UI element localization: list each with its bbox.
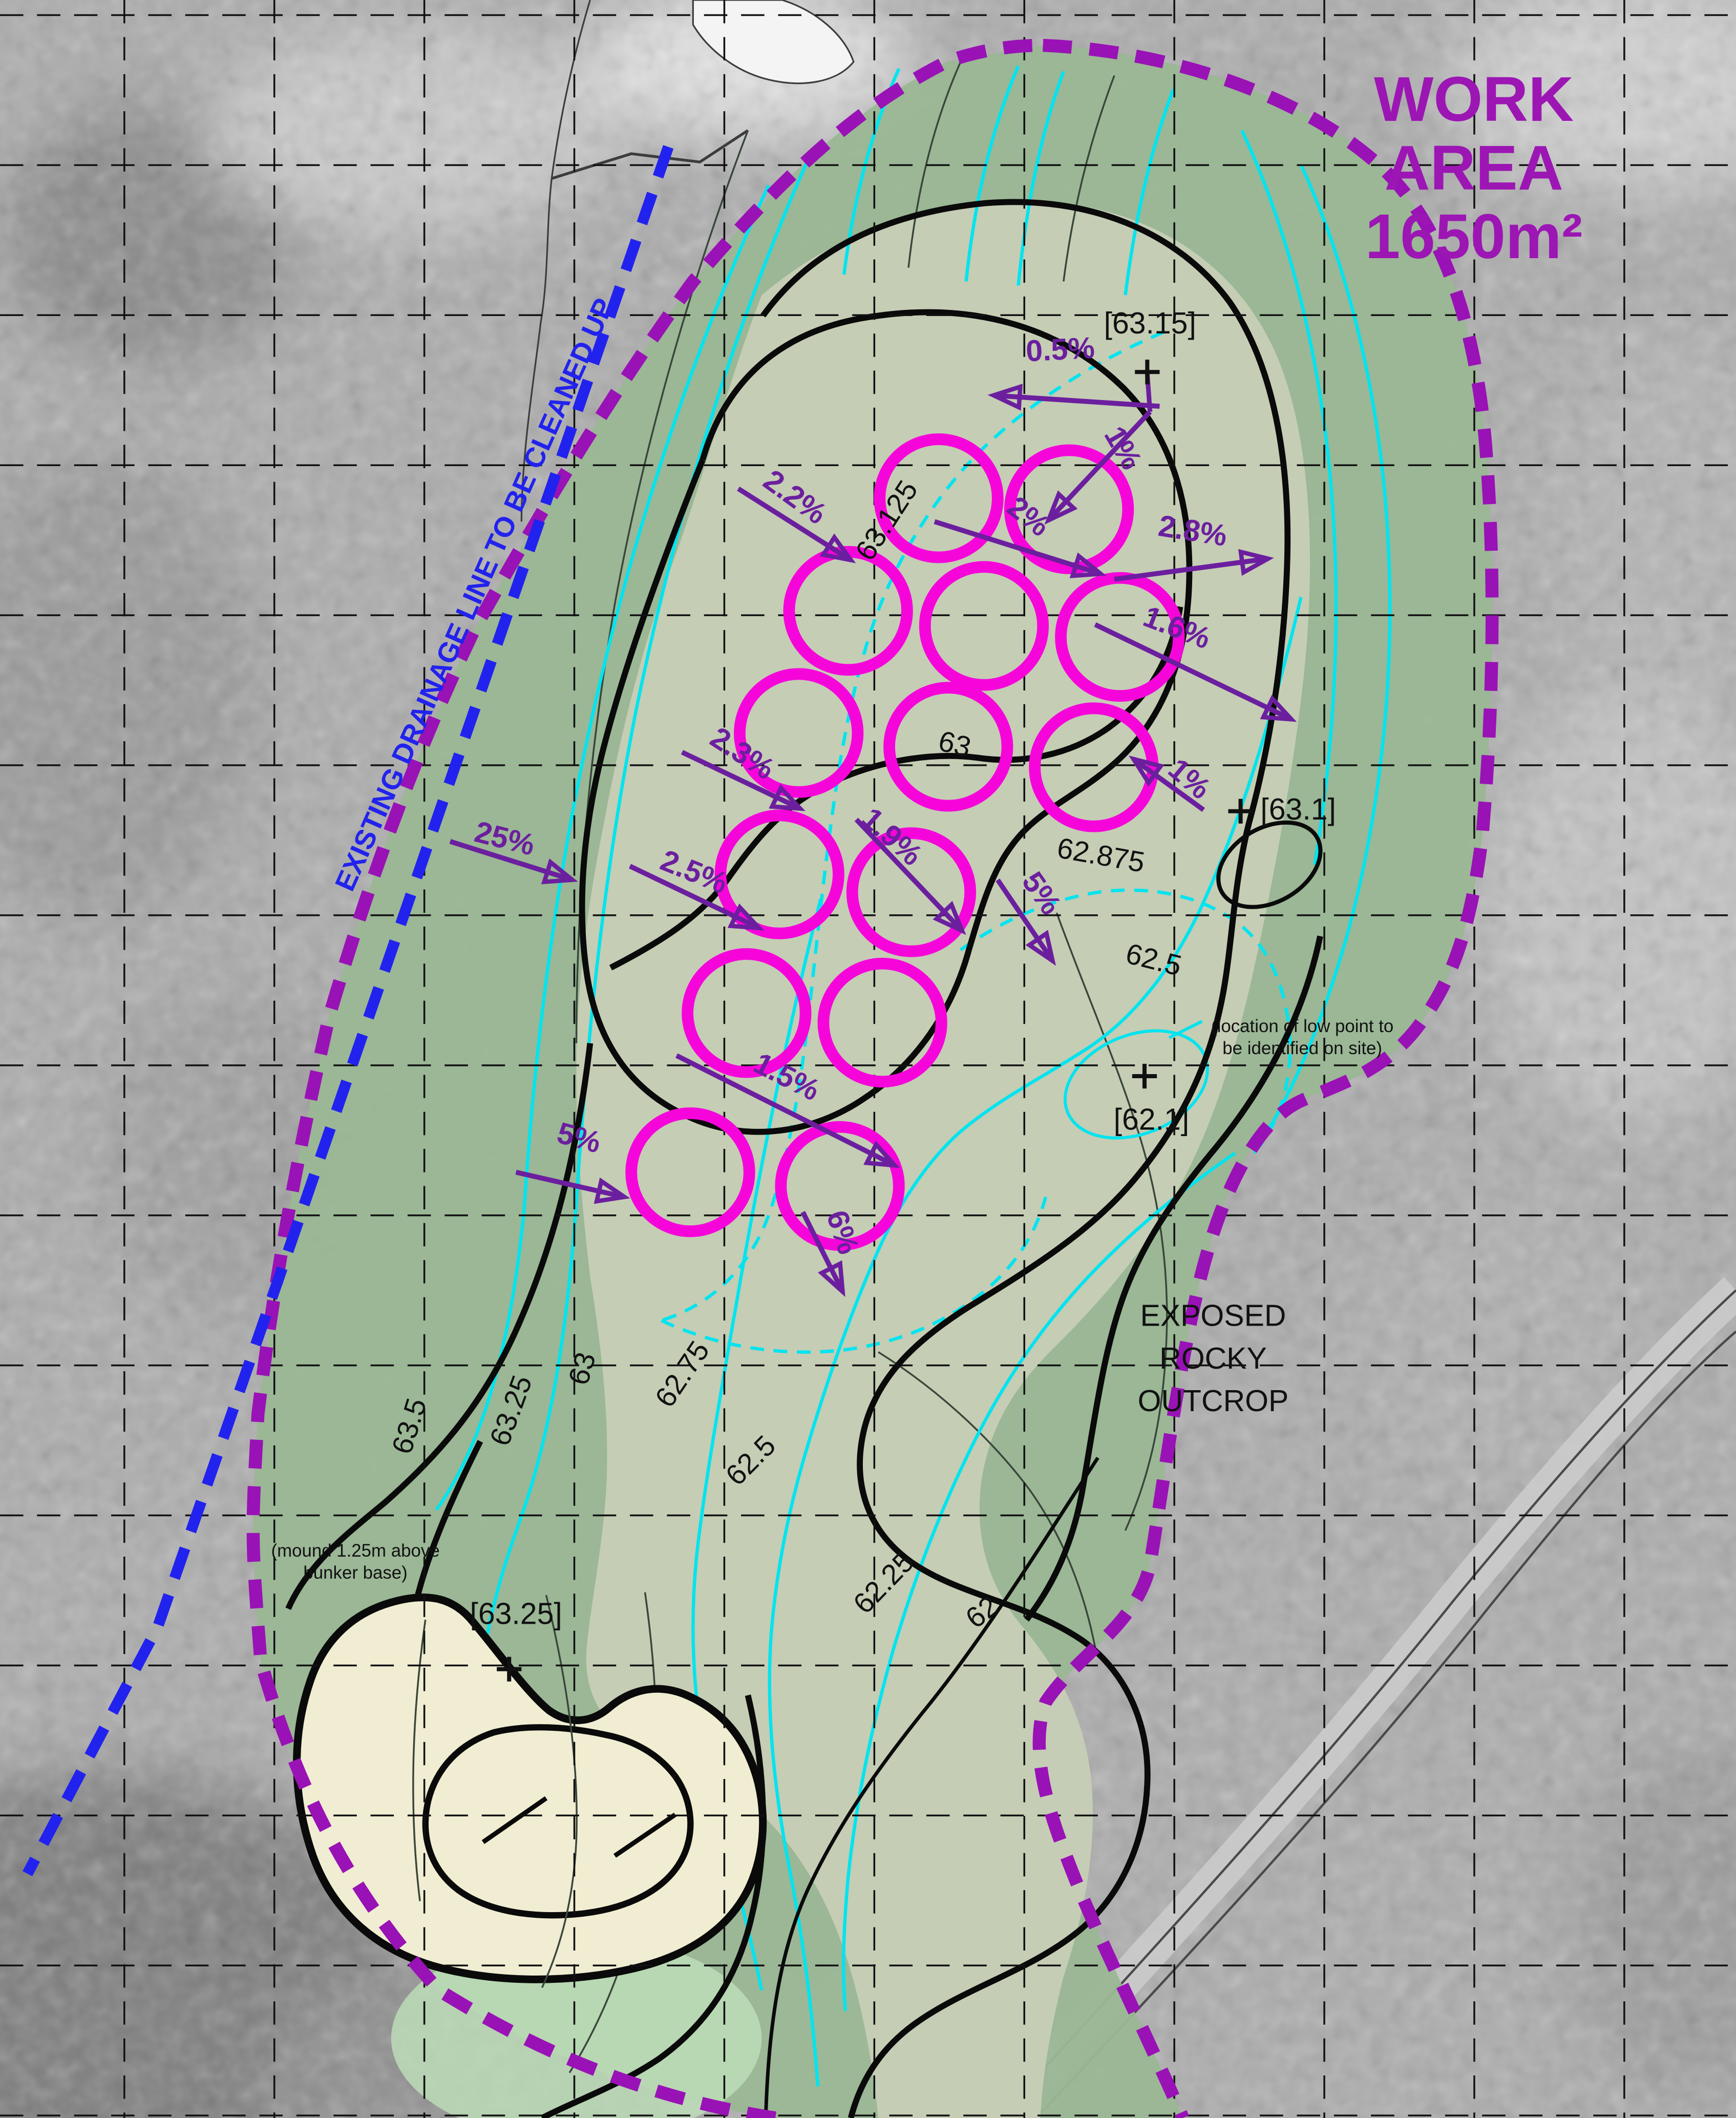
spot-elevation-label: [62.1] bbox=[1114, 1103, 1189, 1137]
slope-percentage-label: 0.5% bbox=[1025, 331, 1096, 368]
note-text-line: bunker base) bbox=[303, 1563, 407, 1583]
spot-elevation-label: [63.1] bbox=[1260, 793, 1336, 826]
note-text-line: (mound 1.25m above bbox=[271, 1541, 440, 1561]
note-text-line: ROCKY bbox=[1159, 1342, 1267, 1375]
site-plan-drawing: 0.5%1%2.2%2%2.8%1.6%2.3%1%1.9%25%2.5%5%1… bbox=[0, 0, 1736, 2118]
spot-elevation-label: [63.25] bbox=[470, 1597, 562, 1630]
work-area-title-line: AREA bbox=[1385, 133, 1563, 203]
work-area-title-line: WORK bbox=[1374, 64, 1574, 135]
work-area-title-line: 1650m² bbox=[1365, 201, 1583, 272]
note-text-line: EXPOSED bbox=[1140, 1299, 1286, 1333]
note-text-line: OUTCROP bbox=[1138, 1385, 1289, 1418]
note-text-line: be identified on site) bbox=[1222, 1038, 1382, 1058]
note-text-line: (location of low point to bbox=[1211, 1016, 1393, 1036]
note-group: EXPOSEDROCKYOUTCROP bbox=[1138, 1299, 1289, 1418]
site-plan-page: 0.5%1%2.2%2%2.8%1.6%2.3%1%1.9%25%2.5%5%1… bbox=[0, 0, 1736, 2118]
spot-elevation-label: [63.15] bbox=[1104, 307, 1196, 340]
